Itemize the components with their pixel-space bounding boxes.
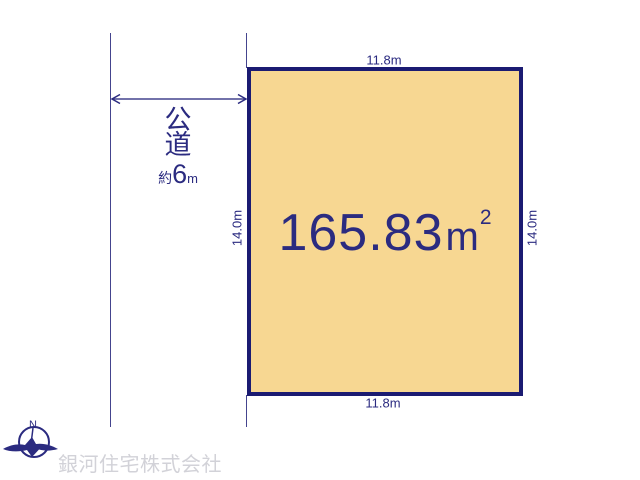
- road-right-boundary-line-upper: [246, 33, 247, 68]
- land-plot-diagram: 165.83 m 2 11.8m 11.8m 14.0m 14.0m 公 道 約…: [0, 0, 640, 480]
- road-width-value: 6: [172, 159, 187, 189]
- parcel-area-label: 165.83 m 2: [278, 207, 491, 259]
- parcel-area-unit: m: [446, 217, 479, 257]
- company-name: 銀河住宅株式会社: [58, 448, 222, 477]
- land-parcel: 165.83 m 2: [247, 67, 523, 396]
- dimension-left: 14.0m: [230, 210, 245, 246]
- company-compass-bird-logo-icon: N: [2, 415, 60, 469]
- dimension-top: 11.8m: [366, 53, 401, 68]
- road-width-prefix: 約: [158, 170, 172, 186]
- road-width-unit: m: [187, 171, 198, 186]
- parcel-area-value: 165.83: [278, 207, 443, 259]
- dimension-right: 14.0m: [525, 210, 540, 246]
- dimension-bottom: 11.8m: [365, 396, 400, 411]
- road-label-char-2: 道: [148, 133, 208, 158]
- road-right-boundary-line-lower: [246, 395, 247, 427]
- parcel-area-unit-exponent: 2: [480, 207, 492, 228]
- road-label: 公 道 約6m: [148, 108, 208, 190]
- road-width-label: 約6m: [148, 163, 208, 190]
- road-width-arrow-icon: [110, 92, 248, 106]
